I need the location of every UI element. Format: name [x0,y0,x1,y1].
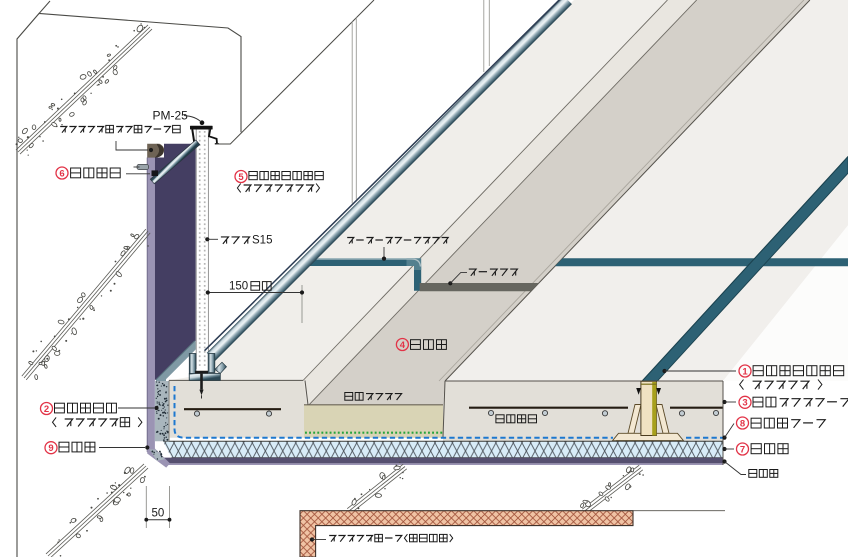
svg-text:S15: S15 [252,234,272,246]
svg-text:7: 7 [740,444,745,455]
svg-text:4: 4 [400,340,406,351]
svg-text:150: 150 [229,281,248,293]
svg-text:8: 8 [740,418,745,429]
svg-text:1: 1 [742,366,748,377]
svg-text:2: 2 [44,404,49,415]
svg-text:6: 6 [59,168,64,179]
svg-text:50: 50 [152,508,165,520]
svg-text:5: 5 [238,172,244,183]
svg-text:PM-25: PM-25 [153,109,189,123]
svg-text:3: 3 [742,398,747,409]
svg-text:9: 9 [48,443,53,454]
